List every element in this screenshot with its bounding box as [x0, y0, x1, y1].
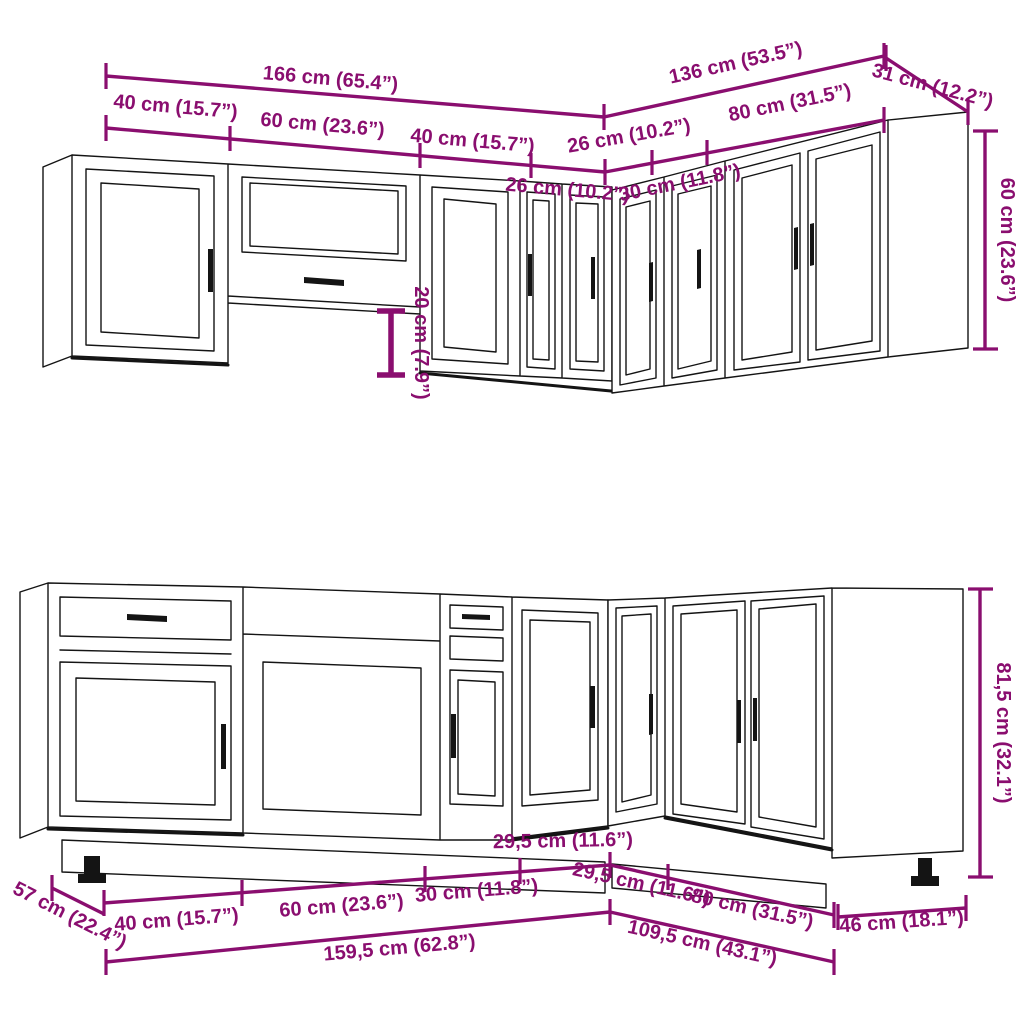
- dim-upper-w40-left-label: 40 cm (15.7”): [113, 91, 239, 124]
- dim-upper-gap-label: 20 cm (7.9”): [410, 286, 432, 399]
- dim-lower-w40-label: 40 cm (15.7”): [114, 904, 240, 936]
- lower-cabinet-drawing: [20, 583, 963, 908]
- dim-lower-total-left-label: 159,5 cm (62.8”): [323, 930, 477, 965]
- dim-lower-w295-left-label: 29,5 cm (11.6”): [493, 829, 633, 853]
- dim-upper-end-depth-label: 31 cm (12.2”): [870, 59, 996, 112]
- cabinet-dimension-diagram: 166 cm (65.4”) 136 cm (53.5”) 31 cm (12.…: [0, 0, 1024, 1024]
- dim-upper-total-right-label: 136 cm (53.5”): [667, 38, 804, 89]
- lower-right-run-fronts: [616, 596, 824, 839]
- dimension-gap-line: [377, 311, 405, 375]
- dim-lower-height-label: 81,5 cm (32.1”): [992, 662, 1014, 803]
- dim-lower-depth-left-label: 57 cm (22.4”): [9, 878, 130, 954]
- dim-lower-end-depth-label: 46 cm (18.1”): [839, 907, 965, 938]
- dim-lower-w60-label: 60 cm (23.6”): [279, 890, 405, 922]
- dim-upper-w60-label: 60 cm (23.6”): [260, 109, 386, 142]
- diagram-canvas: 166 cm (65.4”) 136 cm (53.5”) 31 cm (12.…: [0, 0, 1024, 1024]
- dim-upper-w40-right-label: 40 cm (15.7”): [410, 125, 536, 158]
- dim-upper-w26-corner-label: 26 cm (10.2”): [566, 114, 692, 157]
- dim-upper-height-label: 60 cm (23.6”): [996, 178, 1018, 303]
- dim-lower-total-right-label: 109,5 cm (43.1”): [626, 916, 779, 970]
